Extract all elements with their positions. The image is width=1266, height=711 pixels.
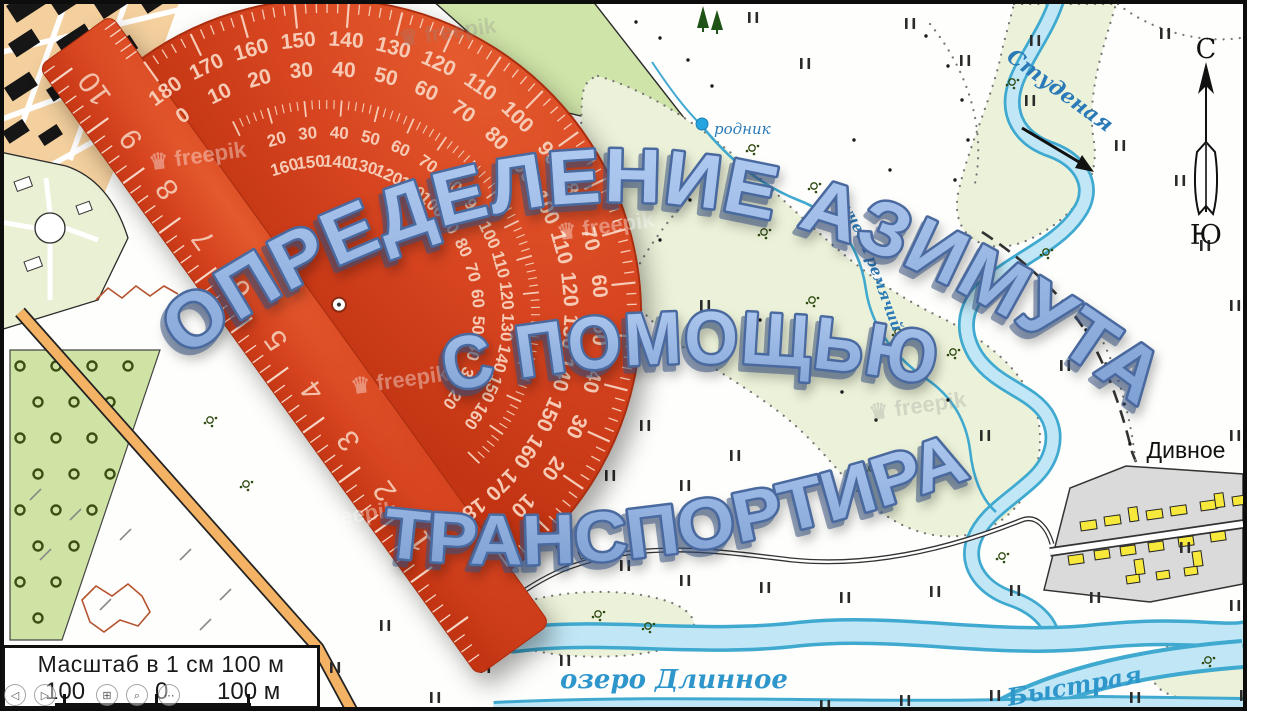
map-scene: Студеная ручей Гремячий родник По Дивное… [0, 0, 1266, 711]
svg-text:120: 120 [556, 271, 582, 308]
svg-text:40: 40 [329, 123, 349, 143]
play-icon[interactable]: ▷ [34, 684, 56, 706]
compass-south-label: Ю [1190, 220, 1222, 251]
svg-text:140: 140 [328, 27, 365, 53]
svg-text:40: 40 [331, 58, 356, 83]
lake-dlinnoye [514, 631, 1243, 640]
svg-text:60: 60 [467, 288, 488, 309]
video-frame: Студеная ручей Гремячий родник По Дивное… [0, 0, 1266, 711]
back-icon[interactable]: ◁ [4, 684, 26, 706]
park-circle [35, 213, 65, 243]
zoom-icon[interactable]: ⌕ [126, 684, 148, 706]
scale-text: Масштаб в 1 см 100 м [5, 651, 317, 678]
svg-text:30: 30 [297, 123, 318, 144]
spring-icon [696, 118, 708, 130]
lake-label: озеро Длинное [560, 665, 788, 695]
more-icon[interactable]: ⋯ [158, 684, 180, 706]
grid-icon[interactable]: ⊞ [96, 684, 118, 706]
svg-text:60: 60 [586, 273, 611, 299]
svg-text:150: 150 [296, 151, 326, 173]
svg-text:120: 120 [496, 281, 518, 311]
village-label: Дивное [1147, 437, 1226, 463]
compass-north-label: С [1196, 34, 1217, 65]
svg-text:30: 30 [289, 58, 315, 83]
svg-text:140: 140 [322, 151, 352, 172]
spring-label: родник [714, 120, 771, 138]
svg-text:150: 150 [280, 28, 317, 54]
player-controls: ◁▷⊞⌕⋯ [0, 684, 200, 710]
right-margin [1244, 0, 1266, 711]
